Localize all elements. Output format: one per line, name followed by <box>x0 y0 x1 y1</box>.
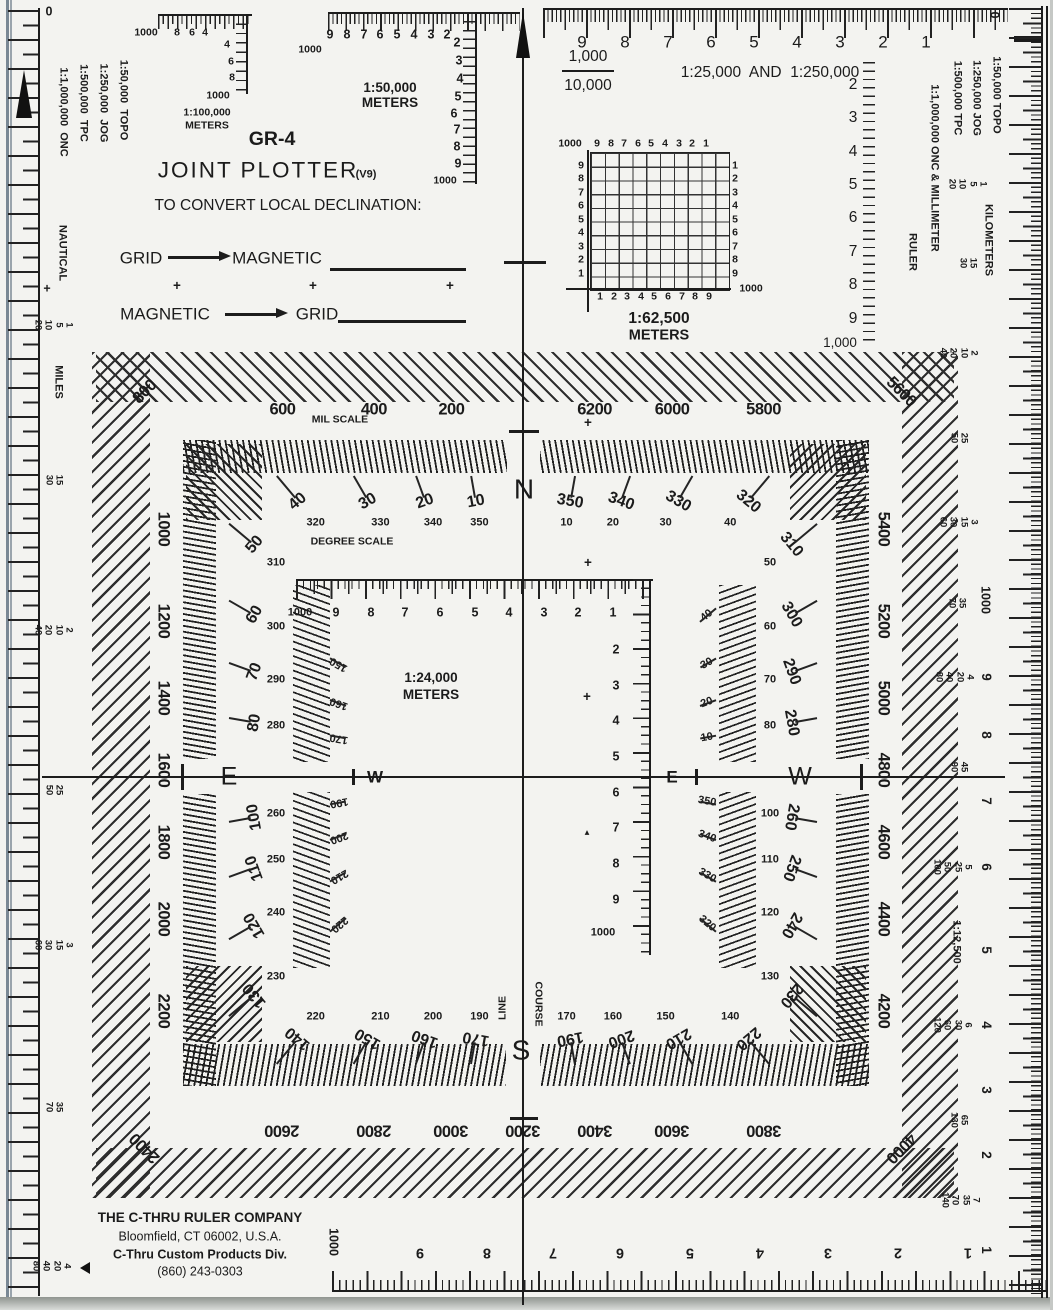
company-address: Bloomfield, CT 06002, U.S.A. <box>118 1231 281 1244</box>
scale-24k-units: METERS <box>403 688 459 702</box>
scale-label: 9 <box>706 292 712 303</box>
scale-label: 9 <box>416 1245 424 1260</box>
scale-label: 8 <box>849 277 858 293</box>
right-tick-stack: 1 5 10 20 <box>947 179 988 190</box>
mil-ring-value: 6000 <box>655 402 690 419</box>
fraction-bar <box>562 70 614 72</box>
company-name: THE C-THRU RULER COMPANY <box>98 1211 303 1225</box>
degree-standard-value: 20 <box>607 517 619 528</box>
degree-standard-value: 120 <box>761 907 779 918</box>
plus-mark: + <box>43 283 50 296</box>
scale-25k-title: 1:25,000 AND 1:250,000 <box>681 65 859 81</box>
model-name: GR-4 <box>249 130 296 150</box>
mil-ring-value: 2800 <box>357 1122 392 1139</box>
grid-label: GRID <box>296 305 339 322</box>
fraction-numerator: 1,000 <box>569 49 608 65</box>
scale-label: 6 <box>706 33 715 50</box>
right-tick-stack: 5 25 50 100 <box>932 859 973 875</box>
ruler-24k-vline <box>649 579 651 955</box>
scale-label: 4 <box>506 607 513 620</box>
scale-25k-label: 1,000 <box>823 336 857 350</box>
scale-label: 6 <box>578 201 584 212</box>
cardinal-west-reversed: W <box>788 764 812 790</box>
mil-ring-value: 400 <box>361 402 387 419</box>
scale-label: 9 <box>455 158 462 171</box>
scale-label: 8 <box>483 1245 491 1260</box>
left-tick-stack: 15 30 <box>43 475 64 486</box>
degree-standard-value: 50 <box>764 557 776 568</box>
right-edge-zero: 0 <box>988 12 1001 19</box>
degree-leader-tick <box>276 475 296 498</box>
centerline-bar-upper <box>504 261 546 264</box>
outer-hatch-left <box>92 352 150 1198</box>
right-scale-jog: 1:250,000 JOG <box>970 60 981 136</box>
mil-ring-value: 4800 <box>875 753 892 788</box>
degree-reversed-value: 290 <box>779 657 803 688</box>
bottom-ruler-long <box>332 1271 1048 1290</box>
scale-label: 9 <box>578 161 584 172</box>
scale-50k-label: 1000 <box>433 176 456 187</box>
scale-label: 8 <box>732 255 738 266</box>
left-tick-stack: 25 50 <box>43 785 64 796</box>
degree-standard-value: 140 <box>721 1011 739 1022</box>
plus-mark: + <box>173 279 181 293</box>
scale-label: 3 <box>824 1245 832 1260</box>
scale-24k-title: 1:24,000 <box>404 671 457 685</box>
crossbar-west <box>181 764 184 790</box>
vertical-centerline <box>522 8 524 1305</box>
ruler-24k-long <box>296 581 653 599</box>
mm-ruler-long-ticks <box>1009 8 1041 1296</box>
scale-100k-title: 1:100,000 <box>183 108 230 119</box>
grid-62k-title: 1:62,500 <box>628 311 689 327</box>
grid-62k <box>590 152 730 291</box>
scale-label: 7 <box>621 139 627 150</box>
degree-reversed-value: 240 <box>777 909 804 940</box>
version: (V9) <box>356 169 377 180</box>
scale-100k-label: 8 <box>174 28 180 39</box>
gr4-joint-plotter: 01:50,000 TOPO1:250,000 JOG1:500,000 TPC… <box>0 0 1053 1310</box>
cardinal-south: S <box>512 1037 531 1066</box>
scale-24k-label: 1000 <box>591 927 615 938</box>
scale-100k-label: 6 <box>228 57 234 68</box>
mm-ruler-line <box>1041 6 1043 1298</box>
scale-label: 7 <box>979 797 993 805</box>
scale-label: 4 <box>756 1245 764 1260</box>
degree-reversed-value: 20 <box>414 491 436 512</box>
degree-standard-value: 330 <box>371 517 389 528</box>
mil-ring-value: 4400 <box>875 902 892 937</box>
ruler-25k-long <box>543 10 1008 38</box>
right-tick-stack: 2 10 20 40 <box>938 348 979 359</box>
ruler-50k-long <box>328 14 520 31</box>
degree-standard-value: 80 <box>764 721 776 732</box>
degree-standard-value: 280 <box>267 721 285 732</box>
scale-label: 9 <box>979 673 993 681</box>
scale-label: 3 <box>541 607 548 620</box>
degree-reversed-value: 330 <box>662 488 693 515</box>
pointer-top-center <box>516 12 530 58</box>
right-scale-onc: 1:1,000,000 ONC & MILLIMETER <box>928 84 939 252</box>
scale-100k-label: 8 <box>229 73 235 84</box>
degree-reversed-value: 300 <box>777 600 804 631</box>
degree-standard-value: 260 <box>267 808 285 819</box>
mil-ring-value: 4600 <box>875 824 892 859</box>
degree-scale-label: DEGREE SCALE <box>311 537 394 548</box>
mil-ring-value: 3800 <box>746 1122 781 1139</box>
degree-reversed-value: 170 <box>461 1028 490 1049</box>
degree-standard-value: 100 <box>761 808 779 819</box>
mil-ring-value: 2200 <box>155 993 172 1028</box>
degree-leader-tick <box>795 599 818 613</box>
grid-62k-label: 1000 <box>558 139 581 150</box>
degree-standard-value: 310 <box>267 557 285 568</box>
scale-100k-units: METERS <box>185 121 229 132</box>
mil-ring-value: 5000 <box>875 681 892 716</box>
scale-label: 4 <box>411 29 418 42</box>
mil-ring-value: 1400 <box>155 681 172 716</box>
right-tick-stack: 7 35 70 140 <box>940 1192 981 1208</box>
scale-label: 7 <box>549 1245 557 1260</box>
scale-100k-label: 4 <box>224 40 230 51</box>
course-label: COURSE <box>533 982 544 1027</box>
scale-label: 8 <box>692 292 698 303</box>
right-tick-stack: 3 15 30 60 <box>938 517 979 528</box>
scale-12k-label: 1000 <box>979 586 992 614</box>
mil-ring-value: 5200 <box>875 604 892 639</box>
outer-hatch-top <box>96 352 954 402</box>
plus-mark: + <box>584 556 592 570</box>
right-scale-tpc: 1:500,000 TPC <box>951 61 962 136</box>
degree-standard-value: 220 <box>307 1011 325 1022</box>
centerline-bar-south <box>510 1117 538 1120</box>
mil-ring-value: 600 <box>269 402 295 419</box>
scale-label: 4 <box>979 1021 993 1029</box>
plus-mark: + <box>446 279 454 293</box>
inner-tick-east <box>695 769 698 785</box>
scale-label: 6 <box>616 1245 624 1260</box>
degree-reversed-value: 320 <box>732 487 763 517</box>
degree-standard-value: 160 <box>604 1011 622 1022</box>
scale-label: 8 <box>979 731 993 739</box>
scale-label: 2 <box>575 607 582 620</box>
scale-label: 5 <box>686 1245 694 1260</box>
mil-ring-value: 3600 <box>655 1122 690 1139</box>
scale-label: 1 <box>610 607 617 620</box>
scale-label: 7 <box>454 124 461 137</box>
scale-label: 2 <box>613 644 620 657</box>
scale-label: 2 <box>454 37 461 50</box>
scale-50k-units: METERS <box>362 96 418 110</box>
scale-label: 2 <box>878 33 887 50</box>
scale-label: 3 <box>613 680 620 693</box>
scale-label: 5 <box>651 292 657 303</box>
scale-label: 2 <box>444 29 451 42</box>
scale-label: 5 <box>613 751 620 764</box>
scale-label: 1 <box>597 292 603 303</box>
scale-label: 3 <box>835 33 844 50</box>
mil-ring-value: 1800 <box>155 824 172 859</box>
left-edge-zero: 0 <box>46 6 53 19</box>
degree-leader-tick <box>228 523 251 543</box>
mil-scale-label: MIL SCALE <box>312 415 368 426</box>
scale-label: 5 <box>732 215 738 226</box>
scale-label: 9 <box>594 139 600 150</box>
scale-label: 4 <box>457 73 464 86</box>
declination-underline-2 <box>338 320 466 323</box>
caret-mark: ▴ <box>585 828 590 838</box>
mil-ring-value: 3400 <box>577 1122 612 1139</box>
mil-ring-value: 4200 <box>875 993 892 1028</box>
mil-ring-value: 2600 <box>265 1122 300 1139</box>
mil-ring-value: 6200 <box>577 402 612 419</box>
scale-label: 7 <box>679 292 685 303</box>
right-tick-stack: 35 70 <box>946 598 967 609</box>
plus-mark: + <box>309 279 317 293</box>
scale-label: 7 <box>361 29 368 42</box>
scale-label: 4 <box>638 292 644 303</box>
magnetic-to-grid-arrow <box>225 313 277 316</box>
scale-100k-label: 6 <box>189 28 195 39</box>
scale-label: 4 <box>792 33 801 50</box>
scale-label: 3 <box>578 242 584 253</box>
scale-24k-label: 1000 <box>288 607 312 618</box>
scale-label: 6 <box>377 29 384 42</box>
degree-reversed-value: 80 <box>245 713 264 733</box>
left-tick-stack: 1 5 10 20 <box>33 320 74 331</box>
device-title: JOINT PLOTTER <box>158 160 359 183</box>
line-label: LINE <box>498 996 509 1020</box>
inner-tick-west <box>352 769 355 785</box>
ruler-24k-vlong <box>633 579 649 955</box>
scale-label: 3 <box>676 139 682 150</box>
scale-50k-label: 1000 <box>298 45 321 56</box>
scale-label: 5 <box>394 29 401 42</box>
degree-leader-tick <box>795 926 818 940</box>
ruler-50k-vticks <box>463 12 475 184</box>
scale-label: 2 <box>578 255 584 266</box>
outer-hatch-right <box>902 352 958 1198</box>
scale-label: 4 <box>578 228 584 239</box>
scale-label: 2 <box>979 1151 993 1159</box>
degree-standard-value: 250 <box>267 854 285 865</box>
degree-standard-value: 300 <box>267 622 285 633</box>
grid-62k-label: 1000 <box>739 284 762 295</box>
declination-heading: TO CONVERT LOCAL DECLINATION: <box>154 198 421 214</box>
degree-standard-value: 170 <box>557 1011 575 1022</box>
degree-standard-value: 30 <box>659 517 671 528</box>
scale-label: 2 <box>732 174 738 185</box>
degree-standard-value: 130 <box>761 972 779 983</box>
degree-standard-value: 10 <box>560 517 572 528</box>
scale-label: 5 <box>749 33 758 50</box>
pointer-top-left <box>16 70 32 118</box>
left-scale-onc: 1:1,000,000 ONC <box>57 67 68 156</box>
ruler-50k-vline <box>475 12 477 184</box>
scale-label: 8 <box>344 29 351 42</box>
right-tick-stack: 65 130 <box>948 1112 969 1128</box>
degree-reversed-value: 60 <box>243 603 266 627</box>
grid-62k-units: METERS <box>629 329 689 344</box>
bottom-ruler-line <box>332 1290 1048 1292</box>
scale-label: 4 <box>662 139 668 150</box>
mil-ring-value: 2000 <box>155 902 172 937</box>
right-tick-stack: 6 30 60 120 <box>932 1017 973 1033</box>
degree-leader-tick <box>229 926 252 940</box>
degree-standard-value: 320 <box>307 517 325 528</box>
company-division: C-Thru Custom Products Div. <box>113 1249 287 1262</box>
degree-reversed-value: 250 <box>779 852 803 883</box>
cardinal-east-inner: E <box>666 768 677 785</box>
left-scale-jog: 1:250,000 JOG <box>97 64 108 143</box>
scan-edge-bottom <box>0 1297 1053 1310</box>
degree-standard-value: 350 <box>470 517 488 528</box>
scale-label: 7 <box>663 33 672 50</box>
mil-ring-value: 1200 <box>155 604 172 639</box>
degree-standard-value: 190 <box>470 1011 488 1022</box>
scale-label: 2 <box>689 139 695 150</box>
left-tick-stack: 3 15 30 60 <box>33 940 74 951</box>
crossbar-east <box>860 764 863 790</box>
scale-label: 3 <box>624 292 630 303</box>
scale-label: 9 <box>577 33 586 50</box>
scale-label: 9 <box>333 607 340 620</box>
scale-label: 1 <box>979 1246 993 1254</box>
left-ruler-short-ticks <box>23 10 38 1293</box>
degree-standard-value: 290 <box>267 674 285 685</box>
scale-label: 6 <box>613 787 620 800</box>
degree-reversed-value: 70 <box>244 661 265 683</box>
scale-label: 9 <box>613 894 620 907</box>
scale-label: 8 <box>368 607 375 620</box>
degree-leader-tick <box>679 476 693 499</box>
right-scale-topo: 1:50,000 TOPO <box>990 56 1001 133</box>
scale-label: 2 <box>611 292 617 303</box>
scale-50k-title: 1:50,000 <box>363 81 416 95</box>
corner-hatch-tr <box>790 444 866 520</box>
outer-hatch-bottom <box>96 1148 954 1198</box>
scale-label: 6 <box>635 139 641 150</box>
scale-label: 8 <box>608 139 614 150</box>
left-tick-stack: 2 10 20 40 <box>33 625 74 636</box>
degree-standard-value: 340 <box>424 517 442 528</box>
scale-label: 9 <box>849 311 858 327</box>
fraction-denominator: 10,000 <box>564 78 611 94</box>
degree-reversed-value: 340 <box>605 490 636 514</box>
scale-label: 1 <box>921 33 930 50</box>
scale-100k-label: 1000 <box>206 91 229 102</box>
scale-label: 1 <box>732 161 738 172</box>
ruler-100k-vticks <box>236 14 246 94</box>
scale-label: 1 <box>578 269 584 280</box>
degree-standard-value: 210 <box>371 1011 389 1022</box>
right-kilometers: KILOMETERS <box>982 204 993 276</box>
grid-label: GRID <box>120 249 163 266</box>
mil-ring-value: 3200 <box>506 1122 541 1139</box>
corner-hatch-tl <box>186 444 262 520</box>
scale-label: 5 <box>849 177 858 193</box>
degree-leader-tick <box>751 475 771 498</box>
scale-label: 9 <box>327 29 334 42</box>
left-tick-stack: 4 20 40 80 <box>31 1261 72 1272</box>
degree-standard-value: 230 <box>267 972 285 983</box>
degree-reversed-value: 10 <box>466 492 486 511</box>
centerline-bar-north <box>509 430 539 433</box>
scale-label: 7 <box>402 607 409 620</box>
scale-label: 1 <box>703 139 709 150</box>
scale-label: 9 <box>732 269 738 280</box>
left-scale-tpc: 1:500,000 TPC <box>77 64 88 142</box>
mil-ring-value: 1600 <box>155 753 172 788</box>
degree-reversed-value: 280 <box>781 708 802 737</box>
mil-ring-value: 1000 <box>155 512 172 547</box>
pointer-bottom-left <box>80 1262 90 1274</box>
left-tick-stack: 35 70 <box>43 1102 64 1113</box>
left-scale-topo: 1:50,000 TOPO <box>117 60 128 141</box>
scale-label: 6 <box>732 228 738 239</box>
degree-standard-value: 110 <box>761 854 779 865</box>
degree-reversed-value: 30 <box>356 490 380 513</box>
degree-standard-value: 70 <box>764 674 776 685</box>
scale-label: 5 <box>648 139 654 150</box>
scale-label: 3 <box>849 110 858 126</box>
scale-label: 8 <box>620 33 629 50</box>
scale-label: 2 <box>849 77 858 93</box>
scale-label: 7 <box>578 188 584 199</box>
mil-ring-value: 3000 <box>434 1122 469 1139</box>
scale-label: 8 <box>454 141 461 154</box>
scale-label: 8 <box>578 174 584 185</box>
ruler-100k-vline <box>246 14 248 94</box>
scale-label: 1 <box>964 1245 972 1260</box>
right-tick-stack: 15 30 <box>957 258 978 269</box>
magnetic-label: MAGNETIC <box>232 249 322 266</box>
scale-label: 6 <box>451 108 458 121</box>
declination-underline-1 <box>330 268 466 271</box>
scale-label: 7 <box>613 822 620 835</box>
scale-label: 6 <box>665 292 671 303</box>
grid-to-magnetic-arrow <box>168 256 220 259</box>
cardinal-north: N <box>514 476 534 505</box>
scale-label: 6 <box>979 863 993 871</box>
degree-standard-value: 150 <box>656 1011 674 1022</box>
scale-label: 5 <box>455 91 462 104</box>
magnetic-label: MAGNETIC <box>120 305 210 322</box>
cardinal-west-inner: W <box>367 768 383 785</box>
plus-mark: + <box>583 690 591 704</box>
scale-label: 3 <box>979 1086 993 1094</box>
scale-12k-title: 1:12,500 <box>950 920 961 963</box>
company-phone: (860) 243-0303 <box>157 1266 242 1279</box>
scale-label: 3 <box>456 55 463 68</box>
scale-label: 5 <box>578 215 584 226</box>
degree-standard-value: 40 <box>724 517 736 528</box>
scale-label: 2 <box>894 1245 902 1260</box>
degree-leader-tick <box>794 523 817 543</box>
scale-label: 4 <box>732 201 738 212</box>
cardinal-east-reversed: E <box>221 764 238 790</box>
left-miles: MILES <box>52 365 63 399</box>
scale-100k-label: 1000 <box>134 28 157 39</box>
degree-reversed-value: 110 <box>243 853 267 883</box>
scale-label: 6 <box>849 210 858 226</box>
scale-label: 7 <box>732 242 738 253</box>
right-tick-stack: 25 50 <box>948 433 969 444</box>
ruler-25k-col-ticks <box>863 62 875 342</box>
mil-ring-value: 200 <box>438 402 464 419</box>
scale-label: 4 <box>613 715 620 728</box>
mil-ring-value: 5800 <box>746 402 781 419</box>
